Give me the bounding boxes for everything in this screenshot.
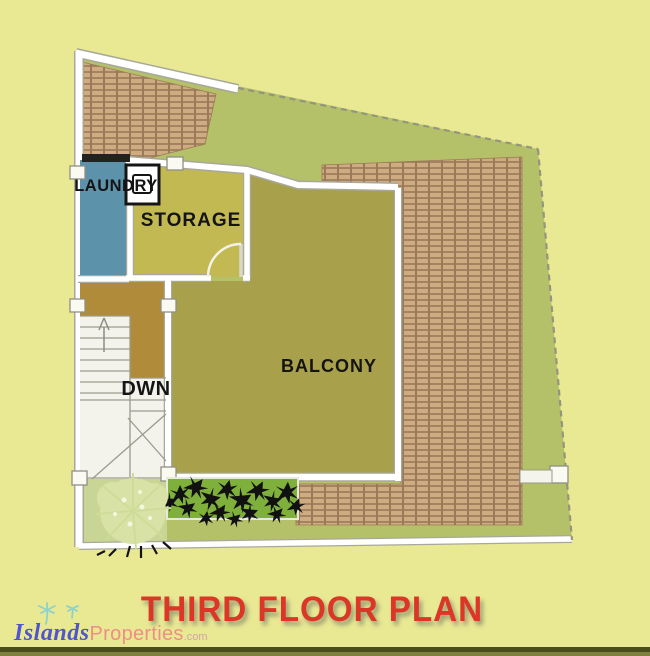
floor-plan-canvas: LAUNDRY STORAGE BALCONY DWN — [0, 0, 650, 656]
logo-properties-text: Properties — [90, 623, 184, 645]
stairs-down-label: DWN — [121, 378, 170, 400]
islands-properties-logo: IslandsProperties.com — [12, 600, 212, 650]
laundry-counter-bar — [82, 154, 130, 162]
logo-tld-text: .com — [184, 631, 208, 643]
laundry-label: LAUNDRY — [74, 177, 158, 195]
logo-islands-text: Islands — [14, 620, 90, 646]
storage-label: STORAGE — [141, 210, 242, 231]
balcony-label: BALCONY — [281, 356, 377, 376]
floor-plan-page: LAUNDRY STORAGE BALCONY DWN THIRD FLOOR … — [0, 0, 650, 656]
side-walkway — [520, 470, 552, 483]
image-border-mid — [0, 652, 650, 656]
